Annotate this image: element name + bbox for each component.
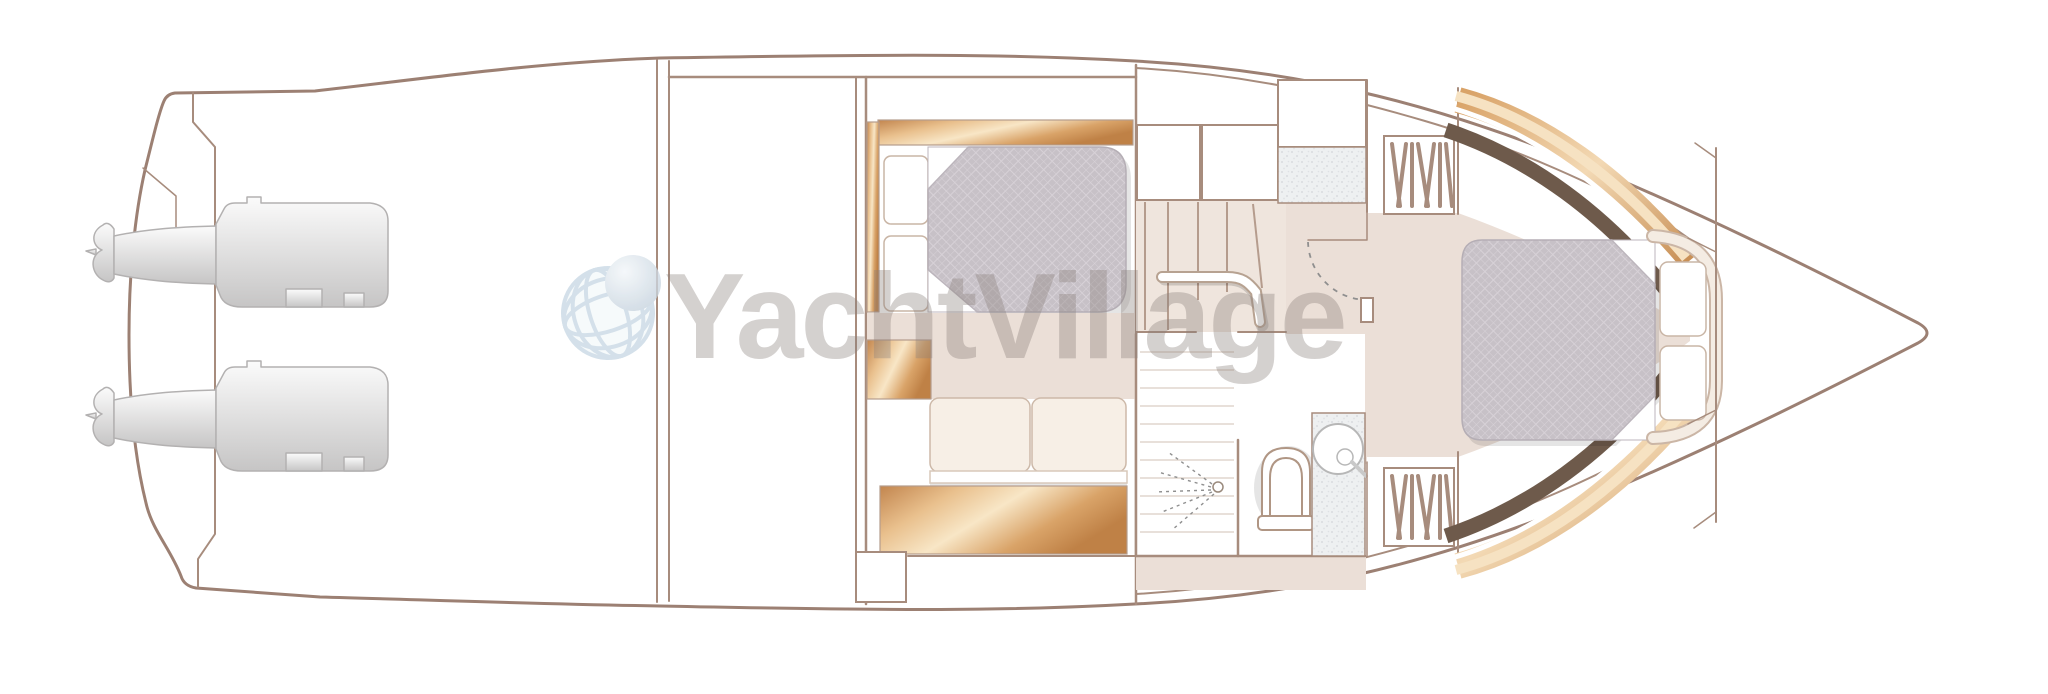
mid-cabin-sofa-cushion xyxy=(1032,398,1126,472)
forward-bed-pillow xyxy=(1660,346,1706,420)
wardrobe-fwd-bottom xyxy=(1384,452,1458,560)
mid-cabin-sofa-cushion xyxy=(930,398,1030,472)
mid-cabin-wood-shelf xyxy=(878,120,1133,145)
yacht-floorplan: YachtVillage xyxy=(0,0,2048,694)
forward-bed-pillow xyxy=(1660,262,1706,336)
watermark: YachtVillage xyxy=(551,248,1344,384)
yacht-floorplan-page: YachtVillage xyxy=(0,0,2048,694)
mid-cabin-wood-floor xyxy=(880,486,1127,554)
engine-icon xyxy=(86,249,96,255)
watermark-text: YachtVillage xyxy=(664,248,1345,384)
mid-bed-pillow xyxy=(884,156,928,224)
forward-bed-mattress xyxy=(1462,240,1655,440)
